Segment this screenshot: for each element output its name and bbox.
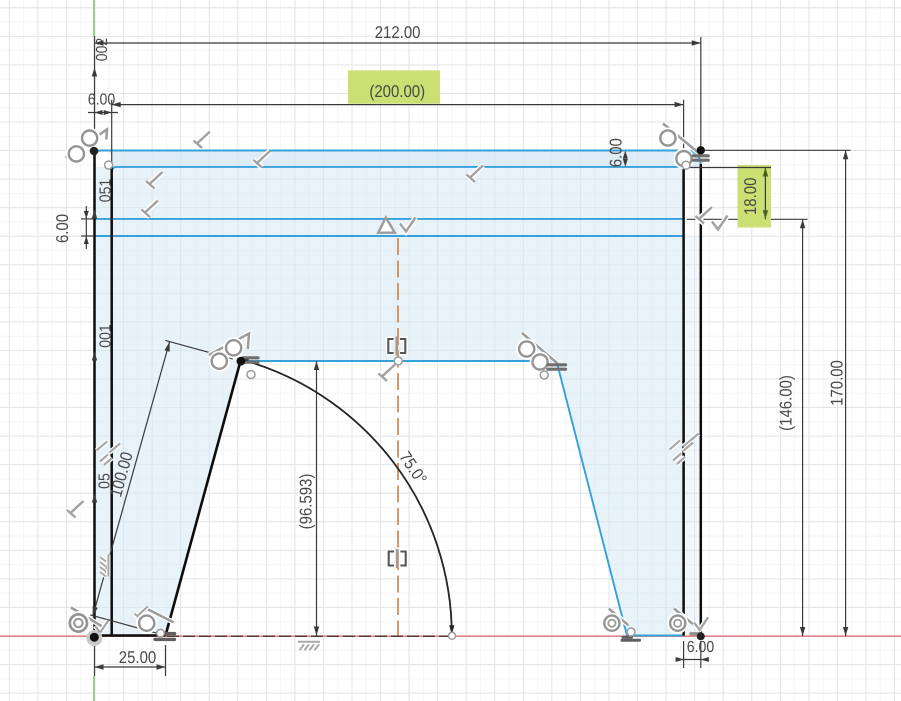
- svg-text:170.00: 170.00: [828, 360, 847, 406]
- svg-text:18.00: 18.00: [741, 178, 760, 215]
- svg-text:6.00: 6.00: [606, 138, 625, 167]
- svg-text:25.00: 25.00: [119, 648, 156, 667]
- svg-text:(200.00): (200.00): [369, 82, 425, 101]
- svg-text:6.00: 6.00: [687, 639, 714, 656]
- svg-text:6.00: 6.00: [88, 92, 115, 109]
- svg-text:6.00: 6.00: [53, 214, 72, 243]
- svg-text:(96.593): (96.593): [297, 474, 316, 530]
- svg-text:212.00: 212.00: [375, 23, 421, 42]
- svg-text:001: 001: [98, 324, 115, 348]
- svg-text:051: 051: [98, 179, 115, 203]
- svg-text:(146.00): (146.00): [777, 375, 796, 431]
- svg-text:002: 002: [94, 38, 111, 62]
